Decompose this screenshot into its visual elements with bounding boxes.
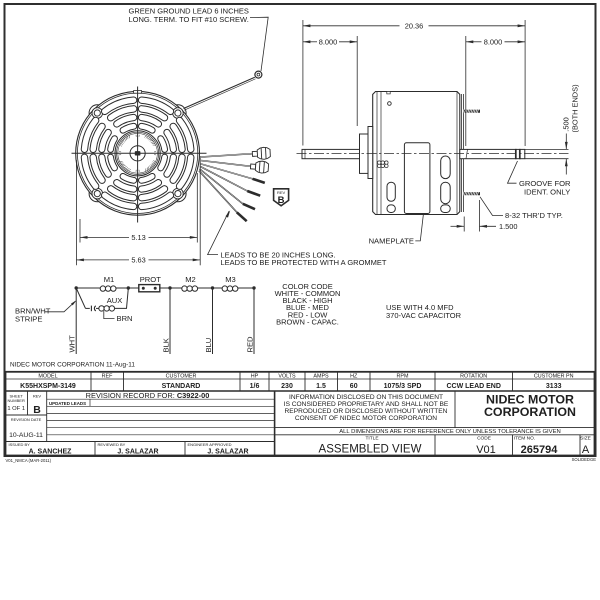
svg-text:GROOVE FOR: GROOVE FOR [519, 179, 571, 188]
svg-text:REF: REF [102, 373, 113, 379]
svg-text:NIDEC MOTOR CORPORATION 11-Aug: NIDEC MOTOR CORPORATION 11-Aug-11 [10, 361, 135, 368]
svg-text:ALL DIMENSIONS ARE FOR REFEREN: ALL DIMENSIONS ARE FOR REFERENCE ONLY UN… [339, 429, 561, 435]
svg-text:NAMEPLATE: NAMEPLATE [369, 237, 414, 246]
svg-text:8.000: 8.000 [484, 38, 503, 47]
svg-text:CUSTOMER PN: CUSTOMER PN [534, 373, 574, 379]
svg-text:UPDATED LEADS: UPDATED LEADS [49, 401, 86, 406]
svg-text:RPM: RPM [397, 373, 409, 379]
svg-text:NUMBER: NUMBER [8, 398, 25, 403]
svg-text:STRIPE: STRIPE [15, 315, 42, 324]
svg-text:5.13: 5.13 [131, 233, 145, 242]
svg-text:AMPS: AMPS [313, 373, 329, 379]
svg-text:8.000: 8.000 [319, 38, 338, 47]
svg-text:LONG. TERM. TO FIT #10 SCREW.: LONG. TERM. TO FIT #10 SCREW. [129, 15, 249, 24]
svg-text:ISSUED BY: ISSUED BY [9, 442, 31, 447]
svg-text:ASSEMBLED VIEW: ASSEMBLED VIEW [319, 444, 422, 456]
svg-text:K55HXSPM-3149: K55HXSPM-3149 [20, 383, 76, 390]
svg-text:265794: 265794 [521, 444, 559, 456]
svg-text:1 OF 1: 1 OF 1 [7, 406, 25, 412]
svg-text:ROTATION: ROTATION [460, 373, 487, 379]
svg-text:BRN: BRN [117, 314, 133, 323]
svg-text:AUX: AUX [107, 296, 123, 305]
svg-text:HZ: HZ [350, 373, 358, 379]
svg-text:(BOTH ENDS): (BOTH ENDS) [570, 84, 579, 132]
svg-text:J. SALAZAR: J. SALAZAR [117, 448, 158, 455]
svg-text:SOLIDEDGE: SOLIDEDGE [572, 457, 597, 462]
svg-text:REPRODUCED OR DISCLOSED WITHOU: REPRODUCED OR DISCLOSED WITHOUT WRITTEN [285, 408, 448, 415]
svg-text:M1: M1 [104, 275, 115, 284]
svg-text:IDENT. ONLY: IDENT. ONLY [524, 188, 570, 197]
svg-text:V01_NMCA (MAR-2011): V01_NMCA (MAR-2011) [6, 458, 52, 463]
svg-text:A: A [582, 444, 590, 456]
svg-text:CCW LEAD END: CCW LEAD END [446, 383, 500, 390]
svg-text:BLU: BLU [204, 338, 213, 353]
svg-text:REVISION DATE: REVISION DATE [11, 417, 42, 422]
svg-text:20.36: 20.36 [405, 22, 424, 31]
svg-text:8-32 THR’D TYP.: 8-32 THR’D TYP. [505, 211, 563, 220]
svg-text:10-AUG-11: 10-AUG-11 [9, 432, 43, 439]
svg-text:BLK: BLK [162, 338, 171, 352]
svg-text:REV: REV [33, 394, 42, 399]
svg-text:REVISION RECORD FOR: C3922-00: REVISION RECORD FOR: C3922-00 [86, 391, 210, 400]
svg-text:3133: 3133 [546, 383, 562, 390]
svg-text:CONSENT OF NIDEC MOTOR CORPORA: CONSENT OF NIDEC MOTOR CORPORATION [295, 415, 437, 422]
svg-text:RED: RED [246, 336, 255, 353]
svg-text:M3: M3 [225, 275, 236, 284]
svg-text:TITLE: TITLE [365, 436, 378, 442]
svg-text:WHT: WHT [68, 335, 77, 353]
svg-text:1.500: 1.500 [499, 222, 518, 231]
svg-text:STANDARD: STANDARD [162, 383, 201, 390]
svg-text:CUSTOMER: CUSTOMER [166, 373, 197, 379]
svg-text:.500: .500 [561, 117, 570, 131]
svg-text:CODE: CODE [477, 436, 491, 442]
svg-text:LEADS TO BE PROTECTED WITH A G: LEADS TO BE PROTECTED WITH A GROMMET [221, 258, 387, 267]
svg-text:VOLTS: VOLTS [278, 373, 296, 379]
svg-text:J. SALAZAR: J. SALAZAR [207, 448, 248, 455]
svg-text:CORPORATION: CORPORATION [484, 405, 576, 419]
svg-text:1075/3 SPD: 1075/3 SPD [384, 383, 422, 390]
svg-text:V01: V01 [476, 444, 496, 456]
svg-text:1/6: 1/6 [250, 383, 260, 390]
svg-text:INFORMATION DISCLOSED ON THIS: INFORMATION DISCLOSED ON THIS DOCUMENT [289, 394, 443, 401]
svg-text:B: B [33, 404, 41, 416]
svg-text:M2: M2 [185, 275, 196, 284]
svg-text:SIZE: SIZE [580, 436, 591, 442]
svg-text:HP: HP [251, 373, 259, 379]
svg-text:A. SANCHEZ: A. SANCHEZ [29, 448, 73, 455]
svg-text:60: 60 [350, 383, 358, 390]
svg-text:REVIEWED BY: REVIEWED BY [98, 442, 126, 447]
svg-text:ENGINEER APPROVED: ENGINEER APPROVED [188, 442, 232, 447]
svg-text:BROWN - CAPAC.: BROWN - CAPAC. [276, 317, 339, 326]
svg-text:1.5: 1.5 [316, 383, 326, 390]
svg-text:PROT: PROT [140, 275, 161, 284]
svg-text:5.63: 5.63 [131, 256, 145, 265]
svg-text:IS CONSIDERED PROPRIETARY AND: IS CONSIDERED PROPRIETARY AND SHALL NOT … [284, 401, 449, 408]
svg-text:230: 230 [281, 383, 293, 390]
svg-text:B: B [278, 195, 285, 206]
svg-text:MODEL: MODEL [38, 373, 57, 379]
svg-text:370-VAC CAPACITOR: 370-VAC CAPACITOR [386, 311, 462, 320]
svg-text:ITEM NO.: ITEM NO. [514, 436, 535, 442]
